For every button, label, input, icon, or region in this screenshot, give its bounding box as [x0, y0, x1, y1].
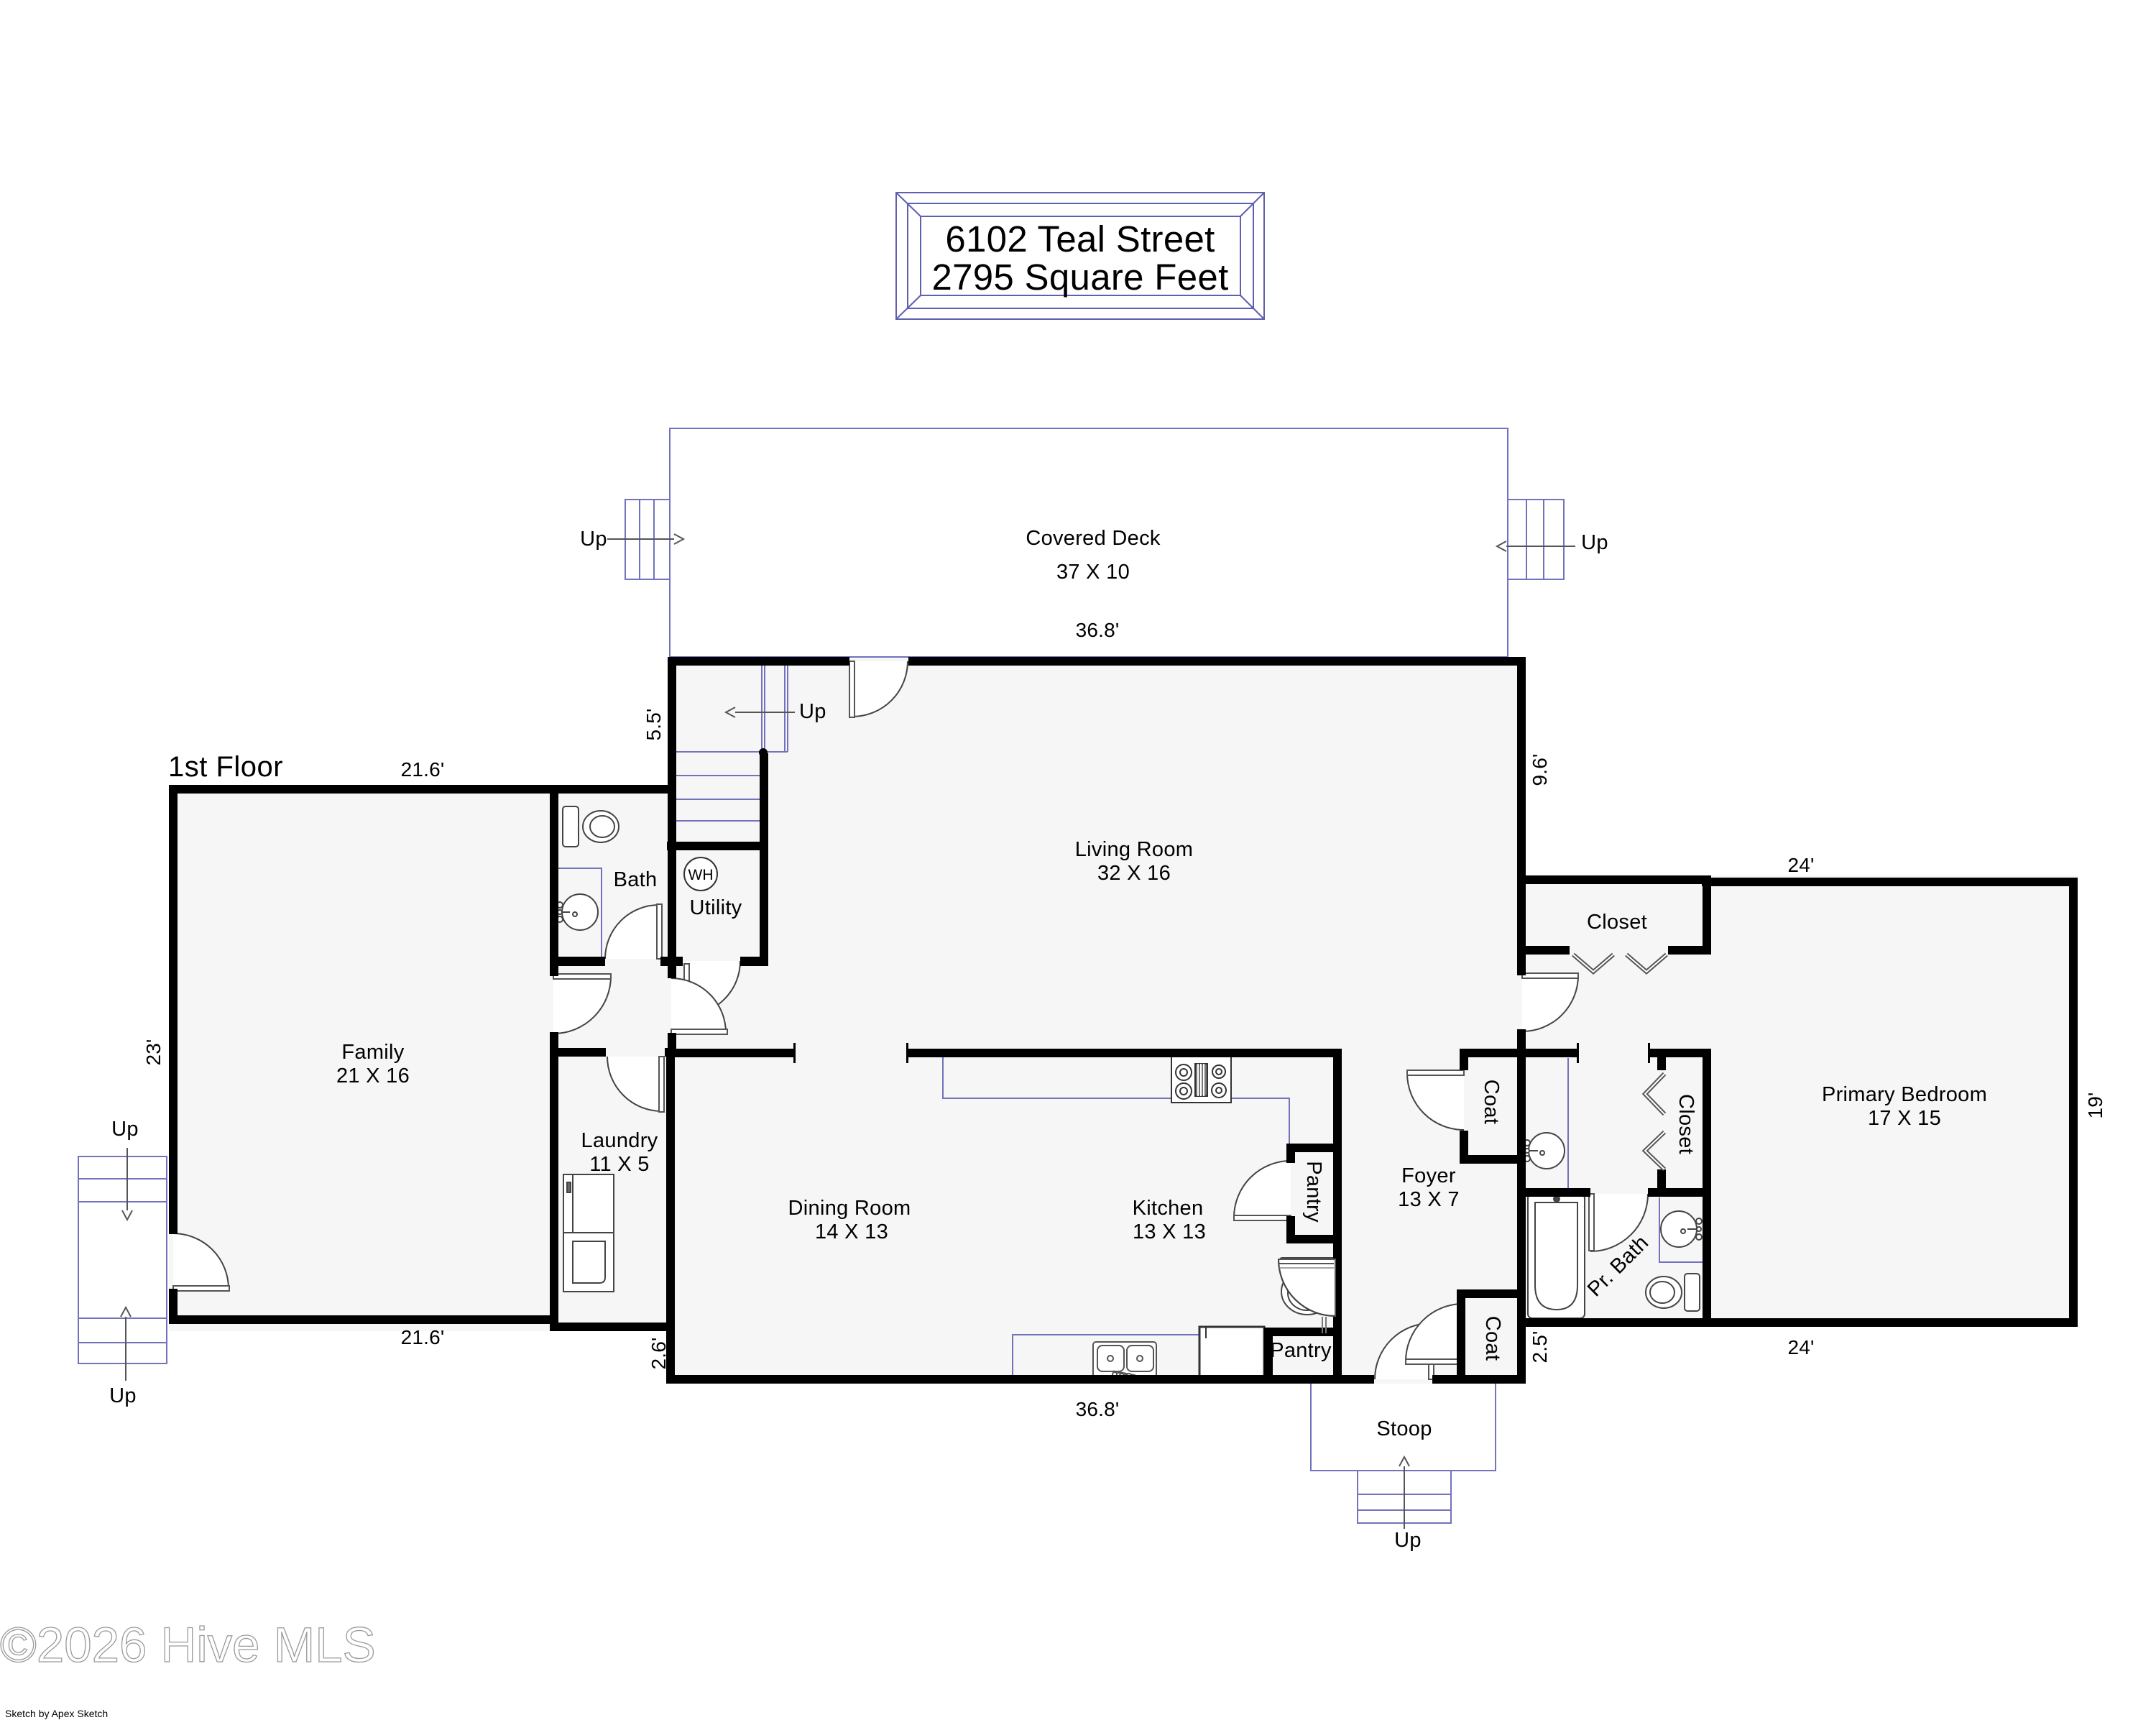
svg-text:Up: Up: [580, 528, 607, 551]
svg-text:©2026 Hive MLS: ©2026 Hive MLS: [0, 1617, 376, 1673]
svg-text:14 X 13: 14 X 13: [815, 1220, 888, 1243]
svg-text:Up: Up: [109, 1384, 137, 1407]
svg-text:Up: Up: [1581, 531, 1608, 554]
svg-text:Laundry: Laundry: [581, 1129, 658, 1152]
svg-text:36.8': 36.8': [1076, 1398, 1120, 1420]
svg-text:23': 23': [142, 1039, 165, 1065]
svg-text:Family: Family: [341, 1041, 404, 1064]
svg-text:Pantry: Pantry: [1302, 1161, 1325, 1223]
svg-text:Closet: Closet: [1674, 1094, 1697, 1154]
svg-text:1st Floor: 1st Floor: [168, 751, 283, 783]
svg-text:Primary Bedroom: Primary Bedroom: [1822, 1083, 1987, 1106]
svg-text:13 X 13: 13 X 13: [1133, 1220, 1206, 1243]
svg-text:9.6': 9.6': [1529, 753, 1551, 786]
svg-text:Coat: Coat: [1480, 1080, 1503, 1124]
svg-text:Stoop: Stoop: [1376, 1417, 1432, 1440]
svg-text:11 X 5: 11 X 5: [589, 1153, 650, 1176]
svg-text:Kitchen: Kitchen: [1133, 1197, 1204, 1220]
svg-text:Foyer: Foyer: [1401, 1164, 1456, 1187]
svg-text:21 X 16: 21 X 16: [336, 1064, 410, 1087]
svg-text:19': 19': [2084, 1092, 2106, 1118]
svg-text:Bath: Bath: [614, 868, 658, 891]
svg-text:21.6': 21.6': [401, 1326, 445, 1348]
svg-text:Up: Up: [1394, 1529, 1422, 1552]
svg-text:2.5': 2.5': [1529, 1330, 1551, 1363]
svg-text:Covered Deck: Covered Deck: [1026, 527, 1161, 550]
svg-text:Living Room: Living Room: [1075, 838, 1194, 861]
svg-text:Utility: Utility: [690, 896, 742, 919]
svg-text:2.6': 2.6': [648, 1337, 670, 1369]
svg-text:2795 Square Feet: 2795 Square Feet: [931, 257, 1228, 298]
svg-text:17 X 15: 17 X 15: [1868, 1107, 1941, 1130]
svg-text:13 X 7: 13 X 7: [1398, 1188, 1460, 1211]
svg-text:37 X 10: 37 X 10: [1056, 561, 1130, 584]
svg-text:5.5': 5.5': [642, 708, 665, 740]
svg-text:21.6': 21.6': [401, 758, 445, 781]
svg-text:Dining Room: Dining Room: [788, 1197, 911, 1220]
svg-text:24': 24': [1787, 854, 1814, 876]
svg-text:24': 24': [1787, 1336, 1814, 1358]
svg-text:6102 Teal Street: 6102 Teal Street: [945, 219, 1215, 259]
svg-text:36.8': 36.8': [1076, 619, 1120, 641]
svg-text:Up: Up: [799, 700, 826, 723]
svg-text:Closet: Closet: [1587, 911, 1647, 934]
svg-text:32 X 16: 32 X 16: [1097, 862, 1171, 885]
svg-text:Coat: Coat: [1481, 1316, 1504, 1361]
svg-text:Sketch by Apex Sketch: Sketch by Apex Sketch: [5, 1708, 108, 1719]
svg-text:WH: WH: [688, 867, 714, 883]
svg-text:Up: Up: [111, 1118, 139, 1141]
svg-text:Pantry: Pantry: [1270, 1339, 1332, 1362]
